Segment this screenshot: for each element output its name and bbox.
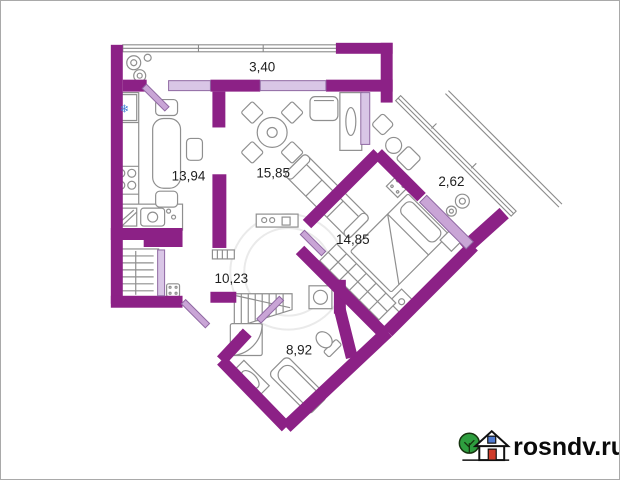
sideboard	[340, 93, 362, 151]
living-window	[260, 81, 326, 91]
kitchen-window	[169, 81, 211, 91]
room-label-living-room: 15,85	[256, 165, 290, 180]
house-with-tree-icon	[459, 431, 509, 460]
dining-table	[241, 101, 303, 163]
washing-machine	[309, 286, 332, 309]
console-table	[256, 214, 298, 227]
plant-icon	[446, 194, 469, 216]
room-label-bedroom: 14,85	[336, 232, 370, 247]
shoe-rack	[212, 250, 234, 259]
watermark-text: rosndv.ru	[513, 433, 619, 461]
floor-plan-drawing: ❄ 3,40 13,94 15,85 2,62 14,85 10,23 8,92…	[1, 1, 619, 479]
toilet	[311, 327, 341, 357]
kitchen-table	[153, 100, 203, 208]
bathtub	[268, 356, 327, 415]
room-label-kitchen: 13,94	[172, 168, 206, 183]
room-label-balcony-top: 3,40	[249, 60, 275, 75]
fridge-snowflake-icon: ❄	[120, 103, 129, 116]
entrance-stairs	[234, 294, 292, 328]
watermark: rosndv.ru	[459, 431, 619, 461]
entrance-door-leaf	[181, 300, 209, 328]
living-east-window	[361, 93, 370, 145]
room-label-bathroom: 8,92	[286, 343, 312, 358]
room-label-balcony-side: 2,62	[438, 174, 464, 189]
floor-plan-page: ❄ 3,40 13,94 15,85 2,62 14,85 10,23 8,92…	[0, 0, 620, 480]
plant-icon	[127, 54, 151, 81]
stool	[167, 284, 180, 297]
room-label-hallway: 10,23	[215, 271, 249, 286]
closet-door	[158, 250, 165, 296]
